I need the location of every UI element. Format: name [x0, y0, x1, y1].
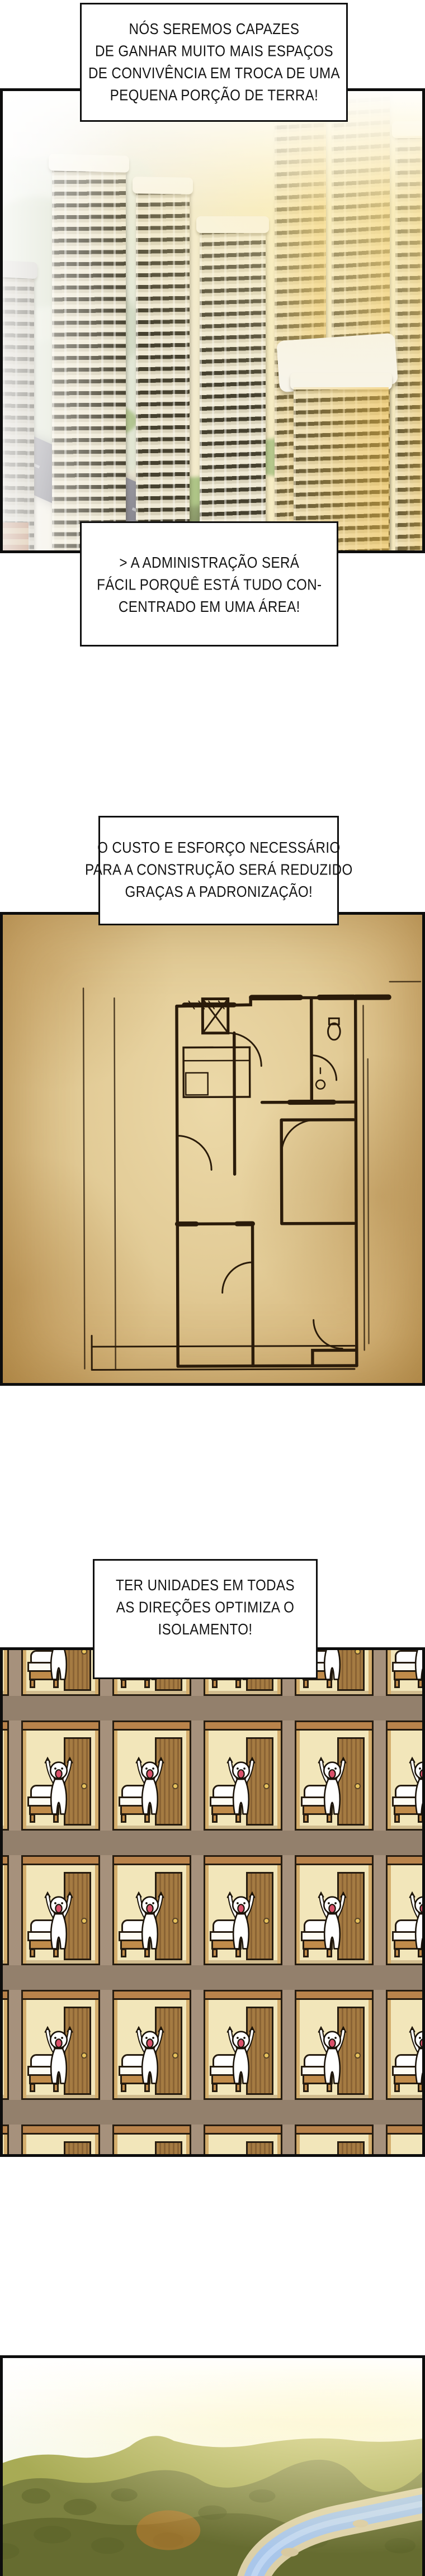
- bed-leg: [212, 1948, 218, 1957]
- room-lintel: [0, 1990, 9, 2000]
- bubble-line: NÓS SEREMOS CAPAZES: [129, 18, 299, 40]
- room-lintel: [204, 1990, 282, 2000]
- bubble-line: PEQUENA PORÇÃO DE TERRA!: [110, 84, 318, 107]
- room-door: [246, 2141, 273, 2157]
- door-knob: [263, 2052, 270, 2059]
- bubble-line: DE CONVIVÊNCIA EM TROCA DE UMA: [88, 62, 339, 84]
- room-lintel: [295, 2125, 374, 2135]
- resident-character: [44, 1754, 73, 1827]
- unit-room: [386, 1647, 425, 1696]
- unit-room: [0, 1855, 9, 1965]
- unit-room: [21, 1990, 100, 2100]
- room-lintel: [0, 2125, 9, 2135]
- unit-room: [204, 2125, 282, 2157]
- door-knob: [263, 1783, 270, 1789]
- bed-leg: [212, 2083, 218, 2092]
- unit-room: [112, 2125, 191, 2157]
- unit-room: [295, 2125, 374, 2157]
- resident-character: [318, 2023, 347, 2096]
- room-lintel: [204, 1855, 282, 1865]
- resident-character: [135, 1889, 164, 1961]
- door-knob: [81, 2052, 87, 2059]
- speech-bubble-4: TER UNIDADES EM TODAS AS DIREÇÕES OPTIMI…: [93, 1559, 318, 1679]
- bubble-line: > A ADMINISTRAÇÃO SERÁ: [119, 552, 299, 574]
- room-lintel: [204, 1720, 282, 1731]
- bed-leg: [394, 2083, 400, 2092]
- bed-leg: [121, 1948, 126, 1957]
- bed-leg: [212, 1679, 218, 1688]
- room-door: [155, 2141, 182, 2157]
- panel-city-render: [0, 88, 425, 553]
- bubble-line: PARA A CONSTRUÇÃO SERÁ REDUZIDO: [85, 859, 353, 881]
- room-lintel: [0, 1855, 9, 1865]
- room-lintel: [386, 2125, 425, 2135]
- bed-leg: [30, 1679, 35, 1688]
- bubble-line: O CUSTO E ESFORÇO NECESSÁRIO: [97, 837, 341, 859]
- unit-room: [386, 2125, 425, 2157]
- speech-bubble-1: NÓS SEREMOS CAPAZES DE GANHAR MUITO MAIS…: [80, 3, 348, 122]
- door-knob: [81, 1783, 87, 1789]
- room-lintel: [295, 1855, 374, 1865]
- door-knob: [172, 2052, 178, 2059]
- resident-character: [44, 1889, 73, 1961]
- unit-room: [21, 2125, 100, 2157]
- unit-room: [0, 1720, 9, 1831]
- room-lintel: [386, 1855, 425, 1865]
- bed-leg: [30, 2083, 35, 2092]
- tower: [0, 274, 34, 553]
- corner-building-fragment: [3, 522, 29, 553]
- door-knob: [81, 1648, 87, 1655]
- unit-room: [295, 1720, 374, 1831]
- panel-apartment-cross-section: [0, 1647, 425, 2157]
- unit-room: [295, 1855, 374, 1965]
- bubble-line: TER UNIDADES EM TODAS: [116, 1574, 295, 1596]
- bed-leg: [303, 1814, 309, 1823]
- bubble-line: ISOLAMENTO!: [158, 1618, 253, 1641]
- door-knob: [263, 1918, 270, 1924]
- unit-room: [21, 1720, 100, 1831]
- room-lintel: [112, 1855, 191, 1865]
- bed-leg: [30, 1948, 35, 1957]
- room-lintel: [295, 1990, 374, 2000]
- bubble-line: GRAÇAS A PADRONIZAÇÃO!: [125, 881, 313, 903]
- door-knob: [355, 2052, 361, 2059]
- resident-character: [409, 1754, 425, 1827]
- unit-room: [386, 1720, 425, 1831]
- tower: [52, 168, 126, 553]
- room-lintel: [112, 1990, 191, 2000]
- room-lintel: [295, 1720, 374, 1731]
- speech-bubble-2: > A ADMINISTRAÇÃO SERÁ FÁCIL PORQUÊ ESTÁ…: [80, 521, 338, 647]
- door-knob: [172, 1783, 178, 1789]
- resident-character: [409, 2023, 425, 2096]
- unit-room: [0, 2125, 9, 2157]
- room-lintel: [112, 1720, 191, 1731]
- unit-room: [112, 1855, 191, 1965]
- resident-character: [135, 2023, 164, 2096]
- bed-leg: [394, 1948, 400, 1957]
- resident-character: [409, 1647, 425, 1692]
- bed-leg: [303, 2083, 309, 2092]
- panel-aerial-landscape: [0, 2355, 425, 2576]
- bed-leg: [121, 1679, 126, 1688]
- room-lintel: [204, 2125, 282, 2135]
- rooms-grid: [3, 1650, 422, 2154]
- unit-room: [295, 1990, 374, 2100]
- landscape-drawing: [3, 2358, 422, 2576]
- bed-leg: [394, 1679, 400, 1688]
- resident-character: [226, 1889, 256, 1961]
- tower: [136, 191, 190, 553]
- tower: [395, 136, 425, 553]
- bed-leg: [212, 1814, 218, 1823]
- room-lintel: [386, 1720, 425, 1731]
- door-knob: [81, 1918, 87, 1924]
- unit-room: [0, 1647, 9, 1696]
- unit-room: [21, 1647, 100, 1696]
- unit-room: [21, 1855, 100, 1965]
- room-door: [64, 2141, 91, 2157]
- unit-room: [112, 1990, 191, 2100]
- resident-character: [318, 1889, 347, 1961]
- unit-room: [204, 1855, 282, 1965]
- bed-leg: [121, 2083, 126, 2092]
- unit-room: [112, 1720, 191, 1831]
- floor-plan-drawing: [3, 915, 422, 1383]
- bed-leg: [303, 1679, 309, 1688]
- resident-character: [44, 1647, 73, 1692]
- resident-character: [135, 1754, 164, 1827]
- resident-character: [44, 2023, 73, 2096]
- door-knob: [172, 1918, 178, 1924]
- tower: [200, 231, 266, 553]
- unit-room: [386, 1855, 425, 1965]
- resident-character: [226, 2023, 256, 2096]
- speech-bubble-3: O CUSTO E ESFORÇO NECESSÁRIO PARA A CONS…: [98, 816, 339, 925]
- bubble-line: FÁCIL PORQUÊ ESTÁ TUDO CON-: [97, 573, 322, 596]
- room-lintel: [0, 1720, 9, 1731]
- door-knob: [355, 1918, 361, 1924]
- unit-room: [204, 1720, 282, 1831]
- unit-room: [386, 1990, 425, 2100]
- room-lintel: [21, 1990, 100, 2000]
- resident-character: [318, 1754, 347, 1827]
- bed-leg: [303, 1948, 309, 1957]
- resident-character: [226, 1754, 256, 1827]
- bubble-line: DE GANHAR MUITO MAIS ESPAÇOS: [95, 40, 333, 63]
- bed-leg: [394, 1814, 400, 1823]
- bubble-line: AS DIREÇÕES OPTIMIZA O: [116, 1596, 295, 1619]
- door-knob: [355, 1648, 361, 1655]
- resident-character: [409, 1889, 425, 1961]
- resident-character: [318, 1647, 347, 1692]
- comic-page: NÓS SEREMOS CAPAZES DE GANHAR MUITO MAIS…: [0, 0, 425, 2576]
- panel-floor-plan: [0, 912, 425, 1386]
- unit-room: [0, 1990, 9, 2100]
- bed-leg: [121, 1814, 126, 1823]
- room-lintel: [21, 1855, 100, 1865]
- bed-leg: [30, 1814, 35, 1823]
- door-knob: [355, 1783, 361, 1789]
- unit-room: [204, 1990, 282, 2100]
- room-lintel: [386, 1990, 425, 2000]
- room-lintel: [21, 1720, 100, 1731]
- room-door: [337, 2141, 365, 2157]
- bubble-line: CENTRADO EM UMA ÁREA!: [119, 596, 300, 618]
- room-lintel: [112, 2125, 191, 2135]
- room-lintel: [21, 2125, 100, 2135]
